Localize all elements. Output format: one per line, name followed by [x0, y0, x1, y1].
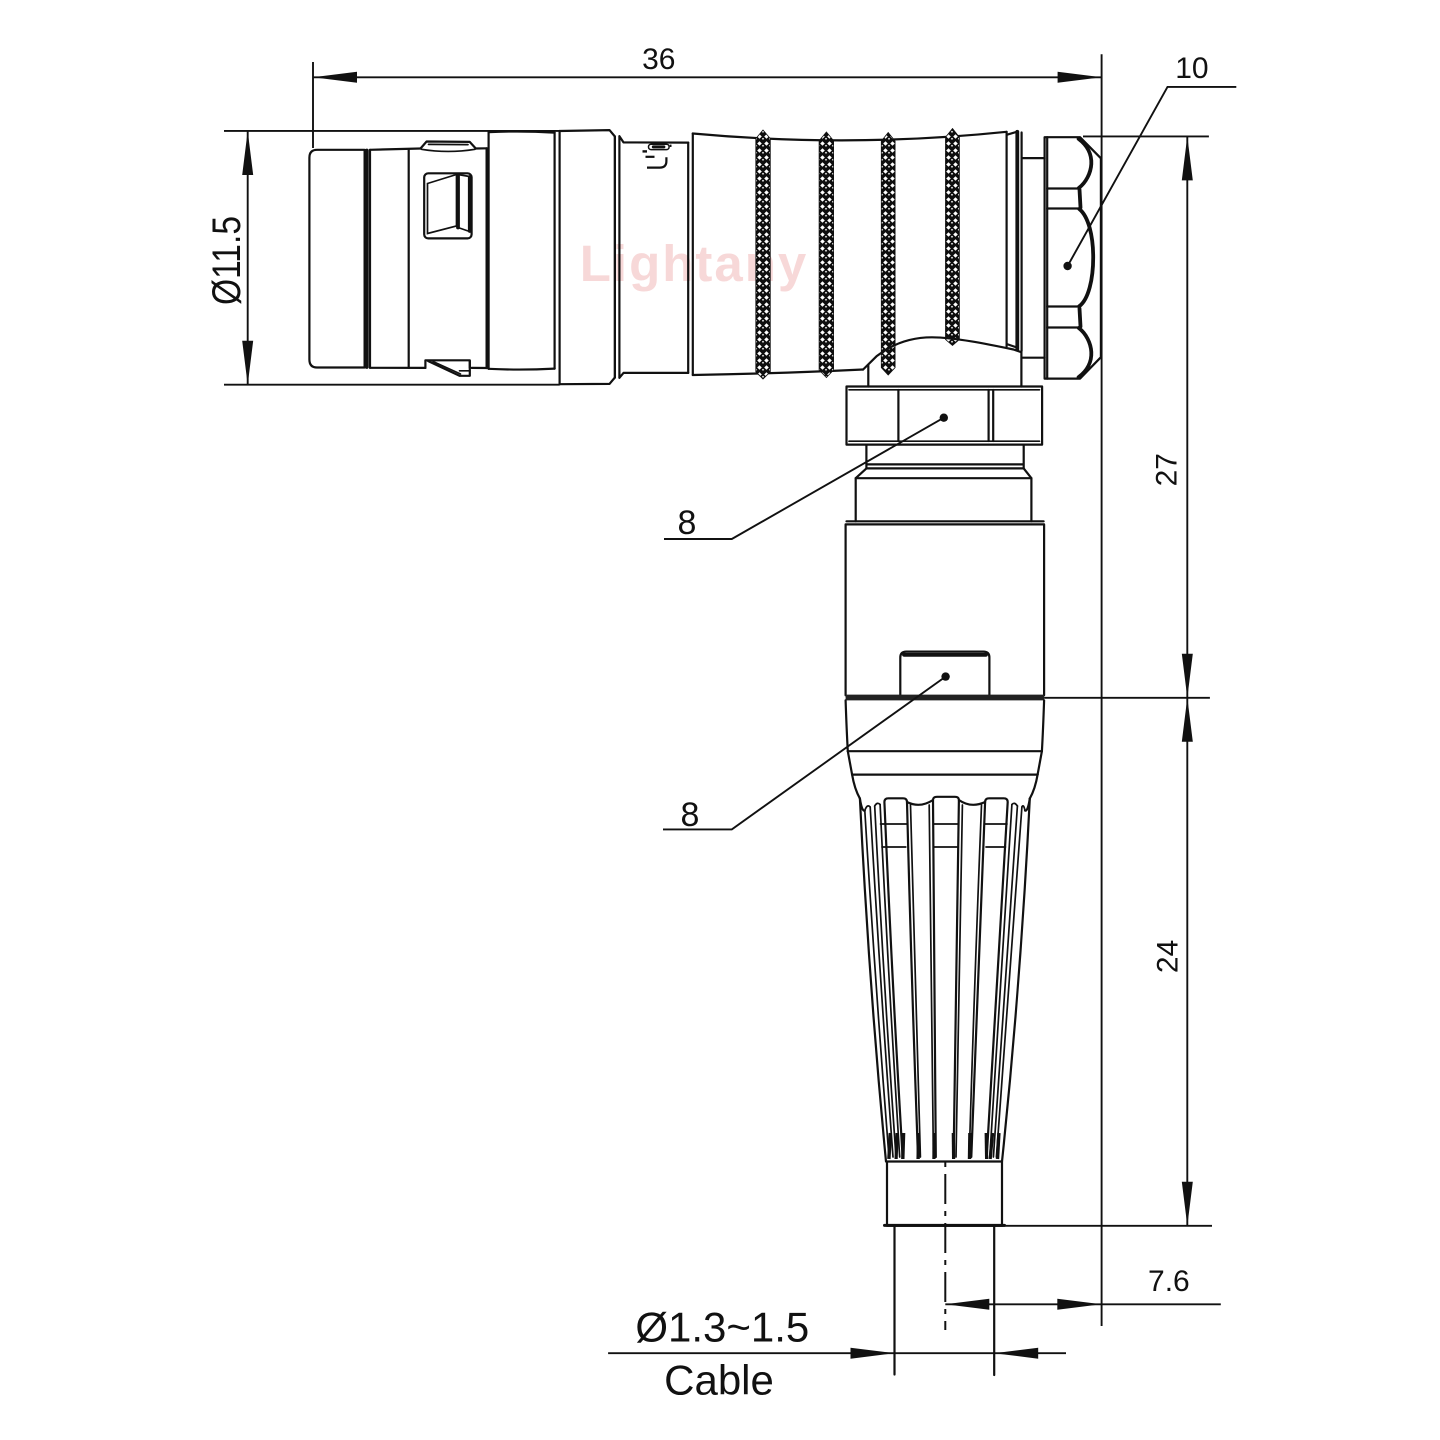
svg-text:36: 36: [642, 43, 675, 76]
svg-text:8: 8: [681, 796, 700, 834]
svg-text:Ø11.5: Ø11.5: [205, 216, 249, 305]
svg-text:24: 24: [1152, 940, 1185, 973]
svg-text:Ø1.3~1.5: Ø1.3~1.5: [635, 1304, 809, 1351]
svg-text:8: 8: [678, 504, 697, 542]
svg-text:27: 27: [1151, 453, 1184, 486]
svg-text:10: 10: [1175, 52, 1208, 85]
svg-text:Cable: Cable: [664, 1357, 774, 1404]
svg-text:7.6: 7.6: [1148, 1265, 1190, 1298]
